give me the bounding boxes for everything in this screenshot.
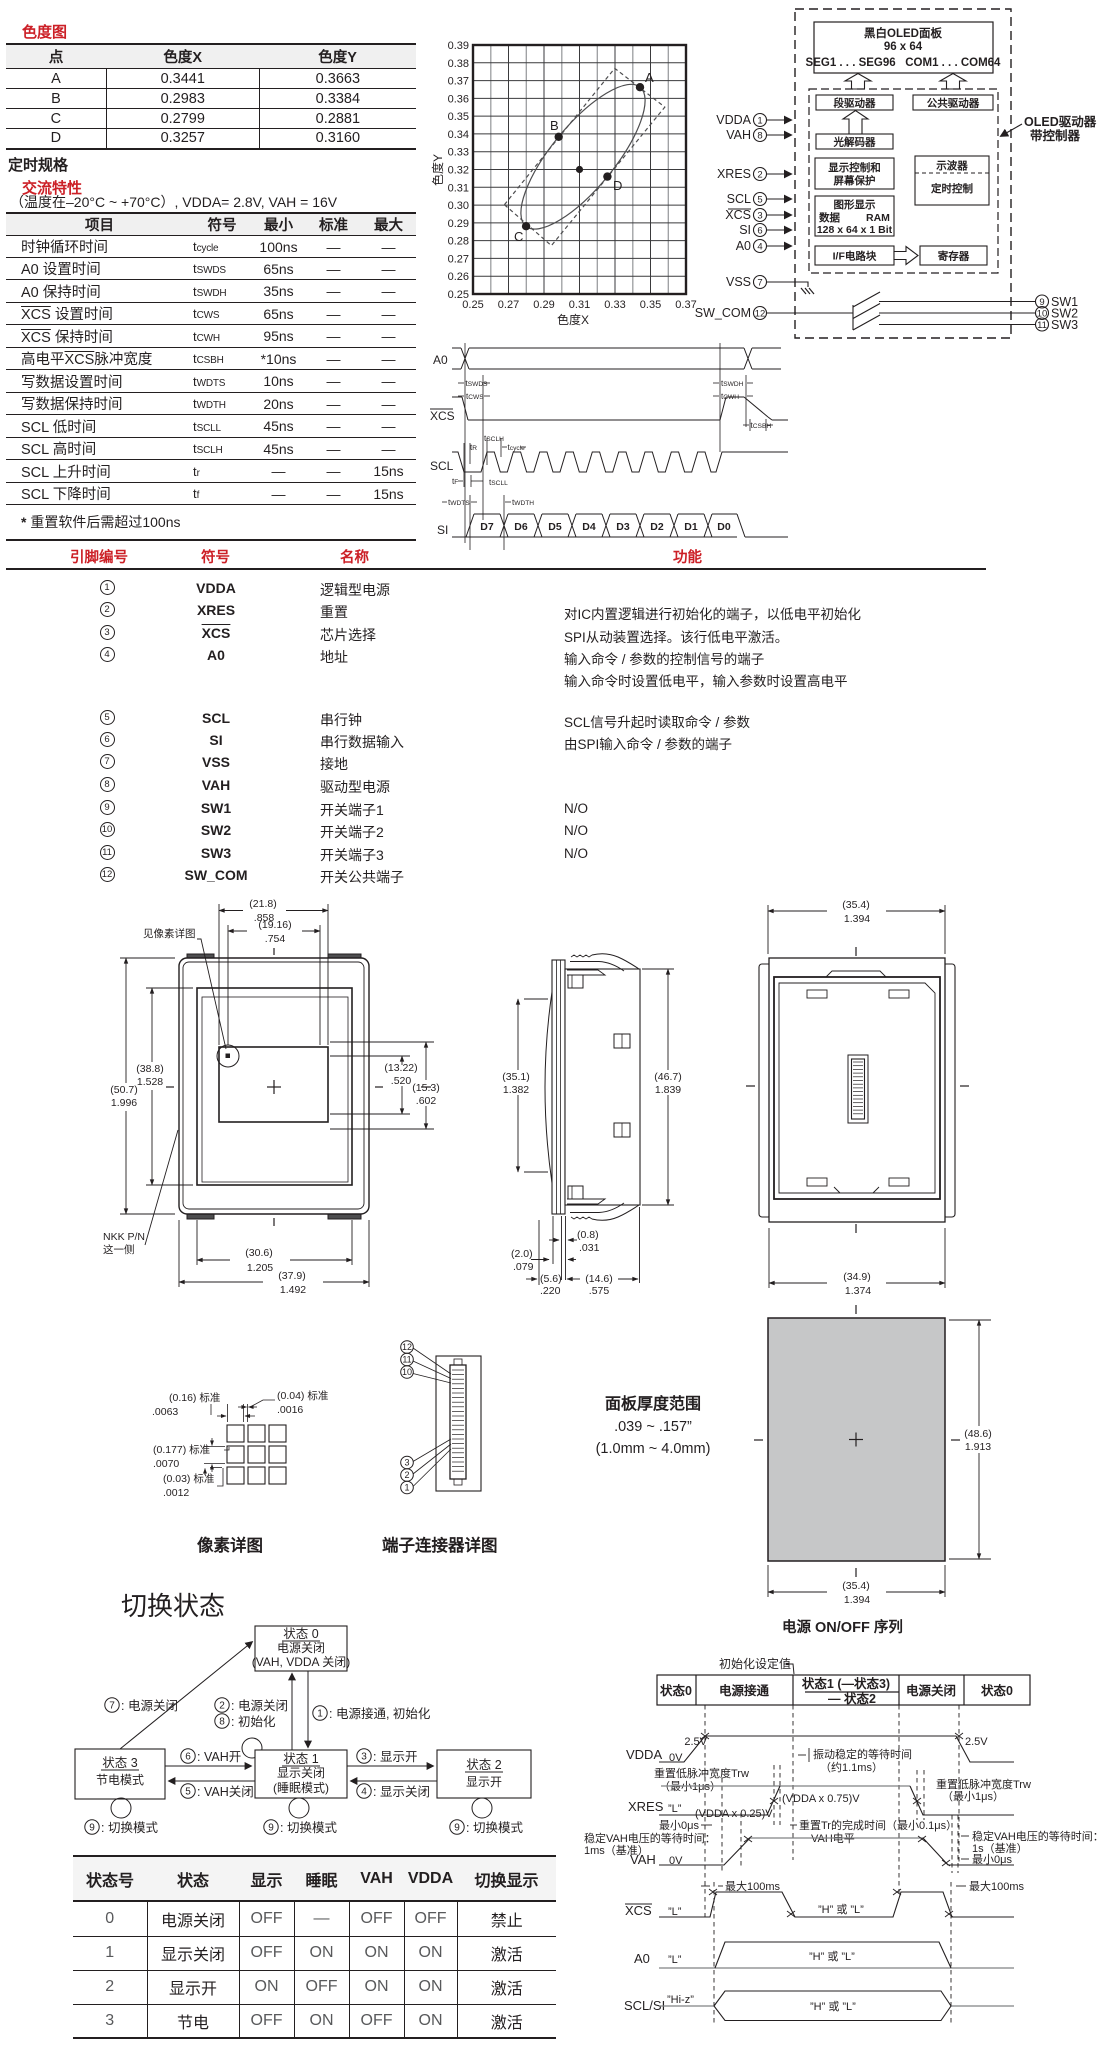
svg-text:SI: SI — [739, 223, 751, 237]
svg-text:VAH: VAH — [726, 128, 751, 142]
svg-text:色度Y: 色度Y — [430, 154, 445, 186]
svg-text:状态 0: 状态 0 — [283, 1627, 318, 1641]
svg-text:9: 9 — [268, 1823, 274, 1834]
svg-text:I/F电路块: I/F电路块 — [833, 250, 877, 263]
svg-text:XCS: XCS — [430, 409, 455, 423]
svg-text:状态 3: 状态 3 — [102, 1756, 137, 1770]
svg-text:1.996: 1.996 — [111, 1097, 137, 1109]
svg-text:10: 10 — [402, 1367, 412, 1377]
svg-text:状态 1: 状态 1 — [283, 1752, 318, 1766]
svg-text:光解码器: 光解码器 — [833, 136, 876, 149]
svg-text:12: 12 — [755, 309, 766, 320]
svg-text:(VDDA x 0.75)V: (VDDA x 0.75)V — [782, 1793, 860, 1805]
svg-text:0.33: 0.33 — [604, 299, 625, 311]
svg-text:”L”: ”L” — [668, 1803, 682, 1815]
svg-text:.079: .079 — [513, 1261, 534, 1273]
svg-text:: 显示关闭: : 显示关闭 — [373, 1785, 430, 1799]
svg-text:(37.9): (37.9) — [278, 1270, 305, 1282]
svg-text:(0.177) 标准: (0.177) 标准 — [153, 1444, 210, 1456]
svg-text:带控制器: 带控制器 — [1030, 128, 1081, 143]
svg-text:(15.3): (15.3) — [412, 1082, 439, 1094]
svg-text:(46.7): (46.7) — [654, 1071, 681, 1083]
svg-text:: 显示开: : 显示开 — [373, 1750, 417, 1764]
svg-text:(35.4): (35.4) — [842, 899, 869, 911]
svg-text:6: 6 — [185, 1752, 191, 1763]
svg-text:NKK P/N: NKK P/N — [103, 1231, 145, 1243]
svg-text:VSS: VSS — [726, 275, 751, 289]
svg-text:C: C — [514, 229, 523, 244]
svg-text:SCL: SCL — [727, 192, 751, 206]
svg-text:数据: 数据 — [818, 211, 840, 224]
svg-text:(2.0): (2.0) — [511, 1248, 533, 1260]
svg-text:SW3: SW3 — [1051, 318, 1078, 332]
svg-text:寄存器: 寄存器 — [938, 250, 970, 263]
svg-text:屏幕保护: 屏幕保护 — [833, 174, 876, 187]
svg-text:(35.4): (35.4) — [842, 1580, 869, 1592]
svg-text:色度X: 色度X — [557, 312, 589, 327]
svg-text:7: 7 — [109, 1701, 115, 1712]
svg-text:(5.6): (5.6) — [540, 1273, 562, 1285]
svg-text:(21.8): (21.8) — [249, 898, 276, 910]
svg-text:10: 10 — [1037, 309, 1048, 320]
svg-text:.031: .031 — [579, 1242, 600, 1254]
svg-text:2: 2 — [404, 1470, 409, 1480]
svg-text:0.27: 0.27 — [448, 253, 469, 265]
svg-text:状态 2: 状态 2 — [466, 1758, 501, 1772]
svg-text:OLED驱动器: OLED驱动器 — [1024, 115, 1097, 129]
svg-text:.754: .754 — [265, 933, 286, 945]
svg-text:.575: .575 — [589, 1285, 610, 1297]
svg-text:.520: .520 — [391, 1075, 412, 1087]
svg-text:状态1 (—状态3): 状态1 (—状态3) — [802, 1676, 890, 1691]
svg-text:(14.6): (14.6) — [585, 1273, 612, 1285]
svg-text:(0.03) 标准: (0.03) 标准 — [163, 1473, 214, 1485]
svg-text:1.374: 1.374 — [845, 1285, 871, 1297]
svg-text:公共驱动器: 公共驱动器 — [927, 97, 980, 110]
svg-text:这一侧: 这一侧 — [103, 1243, 135, 1256]
svg-text:”H” 或 ”L”: ”H” 或 ”L” — [809, 1950, 855, 1963]
svg-text:4: 4 — [757, 242, 762, 253]
svg-text:1: 1 — [317, 1709, 323, 1720]
svg-text:1.382: 1.382 — [503, 1084, 529, 1096]
svg-text:最大100ms: 最大100ms — [969, 1879, 1025, 1893]
svg-text:0.35: 0.35 — [640, 299, 661, 311]
svg-text:(0.16) 标准: (0.16) 标准 — [169, 1392, 220, 1404]
svg-text:(VAH, VDDA 关闭): (VAH, VDDA 关闭) — [252, 1655, 350, 1669]
svg-text:1.394: 1.394 — [844, 913, 870, 925]
svg-text:tSCLH: tSCLH — [484, 434, 504, 443]
svg-text:定时控制: 定时控制 — [930, 182, 973, 195]
svg-text:6: 6 — [757, 226, 762, 237]
svg-text:VAH: VAH — [630, 1852, 656, 1867]
svg-text:1.913: 1.913 — [965, 1441, 991, 1453]
svg-text:0.29: 0.29 — [533, 299, 554, 311]
svg-text:: VAH关闭: : VAH关闭 — [197, 1785, 254, 1799]
svg-text:(13.22): (13.22) — [384, 1062, 417, 1074]
svg-text:SCL: SCL — [430, 459, 454, 473]
svg-text:SEG1 . . . SEG96 COM1 . . .: SEG1 . . . SEG96 COM1 . . . COM64 — [806, 57, 1002, 69]
svg-text:A: A — [645, 70, 654, 85]
svg-text:(48.6): (48.6) — [964, 1428, 991, 1440]
svg-text:示波器: 示波器 — [936, 159, 968, 172]
svg-text:0.34: 0.34 — [448, 129, 469, 141]
svg-text:0.26: 0.26 — [448, 271, 469, 283]
svg-text:状态0: 状态0 — [660, 1683, 692, 1698]
svg-text:9: 9 — [1039, 297, 1044, 308]
svg-text:最小0μs: 最小0μs — [659, 1819, 699, 1832]
svg-text:1.492: 1.492 — [280, 1284, 306, 1296]
svg-text:电源关闭: 电源关闭 — [906, 1683, 956, 1698]
svg-text:电源接通: 电源接通 — [719, 1683, 770, 1698]
svg-text:最小0μs: 最小0μs — [972, 1853, 1012, 1866]
svg-text:(30.6): (30.6) — [245, 1247, 272, 1259]
svg-text:tSWDH: tSWDH — [721, 379, 744, 388]
svg-text:D1: D1 — [684, 521, 698, 533]
svg-text:(35.1): (35.1) — [502, 1071, 529, 1083]
svg-text:0.36: 0.36 — [448, 93, 469, 105]
svg-text:D0: D0 — [717, 521, 731, 533]
svg-text:128 x 64 x 1 Bit: 128 x 64 x 1 Bit — [817, 224, 893, 236]
svg-text:3: 3 — [404, 1458, 409, 1468]
svg-text:XCS: XCS — [625, 1903, 652, 1918]
svg-text:0.31: 0.31 — [448, 182, 469, 194]
svg-text:9: 9 — [89, 1823, 95, 1834]
svg-text:(睡眠模式): (睡眠模式) — [273, 1781, 329, 1795]
svg-text:tWDTS: tWDTS — [448, 498, 470, 507]
svg-text:: 电源关闭: : 电源关闭 — [121, 1699, 178, 1713]
svg-text:振动稳定的等待时间: 振动稳定的等待时间 — [813, 1747, 912, 1761]
svg-text:.0063: .0063 — [152, 1406, 178, 1418]
svg-text:A0: A0 — [634, 1951, 650, 1966]
svg-text:”H” 或 ”L”: ”H” 或 ”L” — [818, 1903, 864, 1916]
svg-text:7: 7 — [757, 278, 762, 289]
svg-text:（最小1μs）: （最小1μs） — [942, 1790, 1004, 1803]
svg-text:tWDTH: tWDTH — [512, 498, 534, 507]
svg-text:.0070: .0070 — [153, 1458, 179, 1470]
svg-text:D5: D5 — [548, 521, 562, 533]
svg-text:tCSBH: tCSBH — [751, 421, 772, 430]
svg-text:A0: A0 — [736, 239, 751, 253]
svg-text:: 电源接通, 初始化: : 电源接通, 初始化 — [329, 1706, 431, 1721]
svg-text:12: 12 — [402, 1342, 412, 1352]
svg-text:1.394: 1.394 — [844, 1594, 870, 1606]
svg-text:(19.16): (19.16) — [258, 919, 291, 931]
svg-text:”H” 或 ”L”: ”H” 或 ”L” — [810, 2000, 856, 2013]
svg-text:0.32: 0.32 — [448, 165, 469, 177]
svg-text:(0.04) 标准: (0.04) 标准 — [277, 1390, 328, 1402]
svg-text:tSWDS: tSWDS — [466, 379, 489, 388]
svg-text:VDDA: VDDA — [716, 113, 751, 127]
svg-text:稳定VAH电压的等待时间：: 稳定VAH电压的等待时间： — [972, 1829, 1100, 1843]
svg-text:SW_COM: SW_COM — [695, 306, 751, 320]
svg-text:A0: A0 — [433, 353, 448, 367]
svg-text:: VAH开: : VAH开 — [197, 1750, 241, 1764]
svg-text:0.38: 0.38 — [448, 58, 469, 70]
svg-text:0.35: 0.35 — [448, 111, 469, 123]
svg-text:B: B — [550, 118, 559, 133]
svg-text:段驱动器: 段驱动器 — [834, 97, 876, 110]
svg-text:XCS: XCS — [725, 208, 751, 222]
svg-text:1.205: 1.205 — [247, 1262, 273, 1274]
svg-text:0.39: 0.39 — [448, 40, 469, 52]
svg-text:2: 2 — [757, 170, 762, 181]
svg-text:（约1.1ms）: （约1.1ms） — [820, 1761, 883, 1774]
svg-text:4: 4 — [361, 1787, 367, 1798]
svg-text:: 初始化: : 初始化 — [231, 1715, 276, 1729]
svg-text:黑白OLED面板: 黑白OLED面板 — [864, 26, 942, 40]
svg-text:显示开: 显示开 — [466, 1775, 502, 1789]
svg-text:tcycle: tcycle — [508, 443, 526, 452]
svg-text:: 切换模式: : 切换模式 — [101, 1821, 158, 1835]
svg-text:0.37: 0.37 — [675, 299, 696, 311]
svg-text:8: 8 — [757, 131, 762, 142]
svg-text:tF: tF — [452, 477, 458, 486]
svg-text:0.30: 0.30 — [448, 200, 469, 212]
svg-text:见像素详图: 见像素详图 — [143, 927, 196, 940]
svg-text:(34.9): (34.9) — [843, 1271, 870, 1283]
svg-text:2.5V: 2.5V — [965, 1736, 988, 1748]
svg-text:: 切换模式: : 切换模式 — [280, 1821, 337, 1835]
svg-text:图形显示: 图形显示 — [834, 199, 876, 211]
svg-text:.602: .602 — [416, 1095, 437, 1107]
svg-text:5: 5 — [757, 195, 762, 206]
svg-text:D4: D4 — [582, 521, 596, 533]
svg-text:最大100ms: 最大100ms — [725, 1879, 781, 1893]
svg-text:11: 11 — [402, 1355, 411, 1365]
svg-text:稳定VAH电压的等待时间：: 稳定VAH电压的等待时间： — [584, 1831, 716, 1845]
svg-text:XRES: XRES — [717, 167, 751, 181]
svg-text:.220: .220 — [540, 1285, 561, 1297]
svg-text:11: 11 — [1037, 320, 1047, 331]
svg-text:”L”: ”L” — [668, 1906, 682, 1918]
svg-text:显示控制和: 显示控制和 — [828, 161, 881, 174]
svg-text:1: 1 — [404, 1483, 409, 1493]
svg-text:tSCLL: tSCLL — [489, 478, 508, 487]
svg-text:重置低脉冲宽度Trw: 重置低脉冲宽度Trw — [936, 1777, 1031, 1791]
svg-text:D7: D7 — [480, 521, 494, 533]
svg-text:0.29: 0.29 — [448, 218, 469, 230]
svg-text:重置低脉冲宽度Trw: 重置低脉冲宽度Trw — [654, 1766, 749, 1780]
svg-text:: 电源关闭: : 电源关闭 — [231, 1699, 288, 1713]
svg-text:2: 2 — [219, 1701, 225, 1712]
svg-text:3: 3 — [361, 1752, 367, 1763]
svg-text:电源关闭: 电源关闭 — [277, 1641, 325, 1655]
svg-text:”Hi-z”: ”Hi-z” — [667, 1994, 694, 2006]
svg-text:0.31: 0.31 — [569, 299, 590, 311]
svg-text:SI: SI — [437, 523, 448, 537]
svg-text:(38.8): (38.8) — [136, 1063, 163, 1075]
svg-text:9: 9 — [454, 1823, 460, 1834]
svg-text:tCWH: tCWH — [721, 392, 739, 401]
svg-text:— 状态2: — 状态2 — [828, 1691, 876, 1706]
svg-text:状态0: 状态0 — [981, 1683, 1013, 1698]
svg-text:VDDA: VDDA — [626, 1747, 662, 1762]
svg-text:.0016: .0016 — [277, 1404, 303, 1416]
svg-text:1.839: 1.839 — [655, 1084, 681, 1096]
svg-text:D6: D6 — [514, 521, 528, 533]
svg-text:RAM: RAM — [866, 212, 890, 224]
svg-text:0.28: 0.28 — [448, 236, 469, 248]
svg-text:(50.7): (50.7) — [110, 1084, 137, 1096]
svg-text:tCWS: tCWS — [466, 392, 484, 401]
svg-text:(VDDA x 0.25)V: (VDDA x 0.25)V — [695, 1808, 773, 1820]
svg-text:8: 8 — [219, 1717, 225, 1728]
svg-text:1.528: 1.528 — [137, 1076, 163, 1088]
svg-text:初始化设定值: 初始化设定值 — [719, 1656, 791, 1671]
svg-text:(0.8): (0.8) — [577, 1229, 599, 1241]
svg-text:3: 3 — [757, 211, 762, 222]
svg-text:重置Tr的完成时间（最小0.1μs）: 重置Tr的完成时间（最小0.1μs） — [799, 1818, 957, 1832]
svg-text:5: 5 — [185, 1787, 191, 1798]
svg-text:.0012: .0012 — [163, 1487, 189, 1499]
svg-text:”L”: ”L” — [668, 1954, 682, 1966]
svg-text:0.37: 0.37 — [448, 76, 469, 88]
svg-text:0.27: 0.27 — [498, 299, 519, 311]
svg-text:tR: tR — [470, 443, 477, 452]
svg-text:XRES: XRES — [628, 1799, 664, 1814]
svg-text:显示关闭: 显示关闭 — [277, 1766, 325, 1780]
svg-text:0.33: 0.33 — [448, 147, 469, 159]
svg-text:D3: D3 — [616, 521, 630, 533]
svg-text:: 切换模式: : 切换模式 — [466, 1821, 523, 1835]
svg-text:节电模式: 节电模式 — [96, 1773, 144, 1787]
svg-text:D2: D2 — [650, 521, 664, 533]
svg-text:96 x 64: 96 x 64 — [884, 41, 923, 53]
svg-text:1: 1 — [757, 116, 762, 127]
svg-text:D: D — [613, 178, 622, 193]
svg-text:0.25: 0.25 — [462, 299, 483, 311]
